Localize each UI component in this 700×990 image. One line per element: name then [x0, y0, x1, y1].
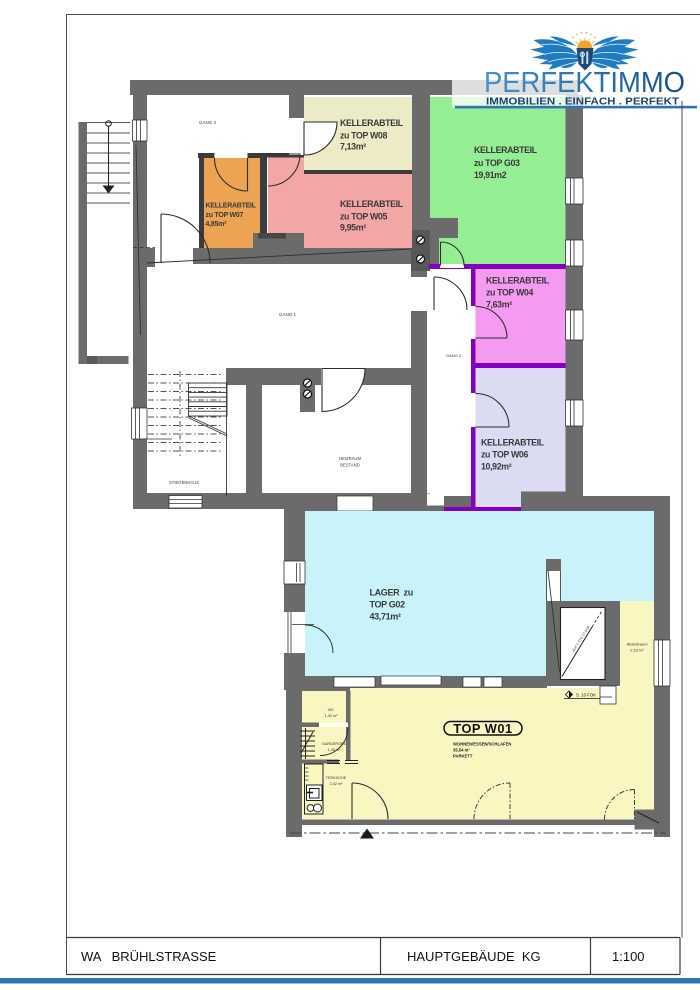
- svg-text:KELLERABTEIL: KELLERABTEIL: [481, 438, 545, 448]
- svg-text:TEEKÜCHE: TEEKÜCHE: [326, 776, 347, 780]
- svg-text:7,13m²: 7,13m²: [340, 142, 366, 152]
- svg-text:7,63m²: 7,63m²: [486, 299, 512, 309]
- svg-text:PARKETT: PARKETT: [453, 754, 473, 759]
- svg-text:WC: WC: [328, 708, 335, 712]
- svg-text:KELLERABTEIL: KELLERABTEIL: [474, 145, 538, 155]
- svg-text:1:100: 1:100: [612, 949, 645, 964]
- svg-text:IMMOBILIEN . EINFACH . PERFEKT: IMMOBILIEN . EINFACH . PERFEKT: [486, 96, 679, 107]
- svg-text:zu TOP G03: zu TOP G03: [474, 158, 520, 168]
- svg-text:4,85m²: 4,85m²: [206, 221, 228, 228]
- svg-text:35,54 m²: 35,54 m²: [453, 747, 470, 752]
- svg-text:2,42 m²: 2,42 m²: [330, 782, 344, 786]
- svg-text:Abstellraum: Abstellraum: [626, 642, 648, 647]
- svg-text:1,35 m²: 1,35 m²: [328, 748, 342, 752]
- svg-text:43,71m²: 43,71m²: [370, 612, 401, 622]
- svg-text:GANG 1: GANG 1: [279, 312, 297, 317]
- svg-text:10,92m²: 10,92m²: [481, 461, 512, 471]
- svg-text:9,95m²: 9,95m²: [340, 223, 366, 233]
- svg-text:KELLERABTEIL: KELLERABTEIL: [340, 118, 404, 128]
- svg-text:KELLERABTEIL: KELLERABTEIL: [486, 276, 550, 286]
- svg-text:1,40 m²: 1,40 m²: [325, 714, 339, 718]
- svg-text:zu TOP W04: zu TOP W04: [486, 288, 533, 298]
- svg-text:HAUPTGEBÄUDE KG: HAUPTGEBÄUDE KG: [407, 949, 541, 964]
- svg-text:2,53 m²: 2,53 m²: [630, 648, 644, 653]
- svg-text:zu TOP W06: zu TOP W06: [481, 450, 528, 460]
- svg-text:WOHNEN/ESSEN/SCHLAFEN: WOHNEN/ESSEN/SCHLAFEN: [453, 741, 511, 746]
- svg-text:STIEGENHAUS: STIEGENHAUS: [169, 480, 199, 485]
- svg-text:zu TOP W08: zu TOP W08: [340, 130, 387, 140]
- svg-text:KELLERABTEIL: KELLERABTEIL: [340, 199, 404, 209]
- svg-text:19,91m2: 19,91m2: [474, 170, 507, 180]
- svg-text:GARDEROBE: GARDEROBE: [322, 742, 347, 746]
- svg-text:zu TOP W05: zu TOP W05: [340, 211, 387, 221]
- svg-text:GANG 2: GANG 2: [446, 353, 462, 358]
- svg-text:KELLERABTEIL: KELLERABTEIL: [206, 203, 257, 210]
- svg-text:zu TOP W07: zu TOP W07: [206, 212, 244, 219]
- svg-text:WA BRÜHLSTRASSE: WA BRÜHLSTRASSE: [81, 949, 217, 964]
- svg-text:S. 10 FOK: S. 10 FOK: [576, 693, 596, 698]
- svg-text:BESTAND: BESTAND: [340, 463, 359, 468]
- svg-text:PERFEKTIMMO: PERFEKTIMMO: [484, 67, 685, 99]
- svg-text:TOP G02: TOP G02: [370, 600, 406, 610]
- svg-text:HEIZRAUM: HEIZRAUM: [339, 456, 361, 461]
- svg-text:TOP W01: TOP W01: [453, 721, 512, 736]
- svg-text:LAGER zu: LAGER zu: [370, 588, 413, 598]
- svg-text:GANG 3: GANG 3: [199, 120, 217, 125]
